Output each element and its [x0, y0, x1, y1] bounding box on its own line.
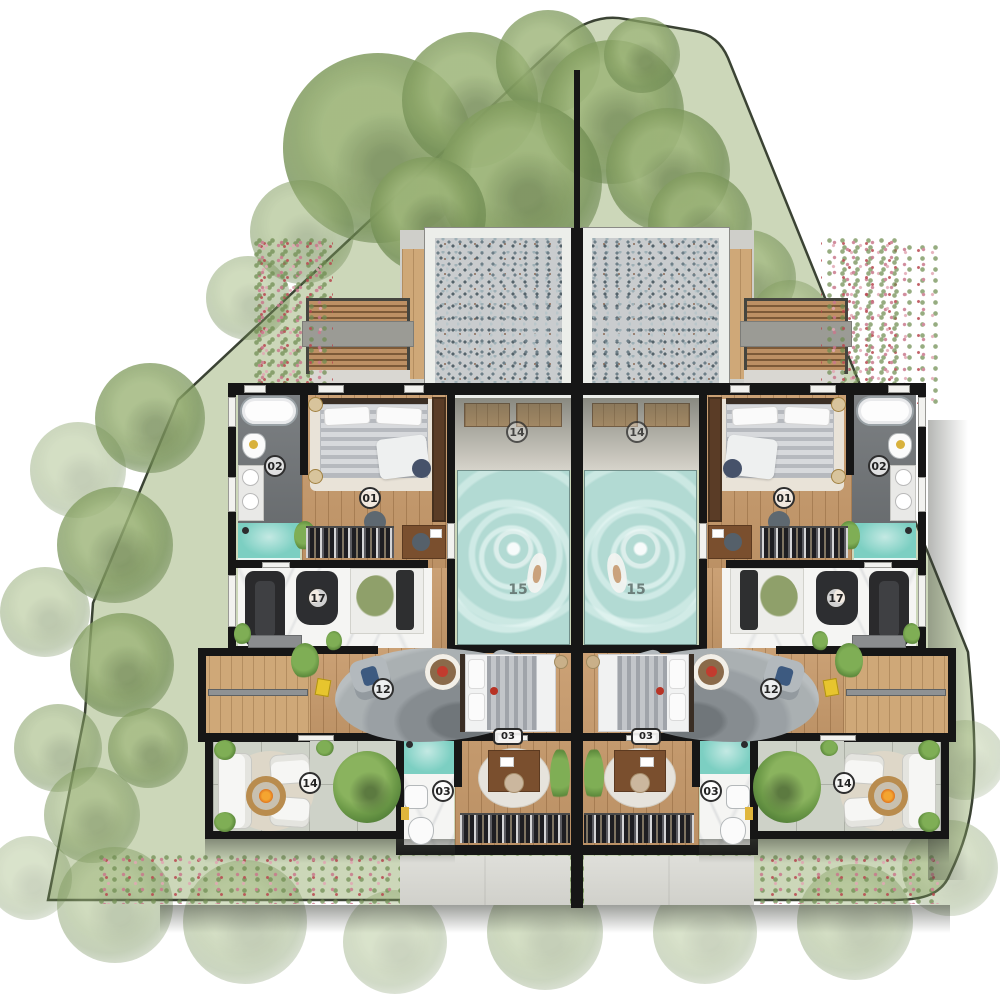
wall [454, 733, 462, 787]
bed-cushion-red [490, 687, 498, 695]
floor-plan-canvas: 02 01 17 12 14 03 14 15 03 [0, 0, 1000, 1000]
weight-machine [396, 570, 414, 630]
terrace-tree [753, 751, 821, 823]
flower-bed [821, 235, 901, 400]
terrace-tree [333, 751, 401, 823]
window [244, 385, 266, 393]
pouf [554, 655, 568, 669]
desk-chair [723, 459, 742, 478]
potted-plant [234, 623, 251, 645]
room-label-master-bedroom: 01 [359, 487, 381, 509]
pillow [468, 659, 485, 689]
gravel-courtyard [582, 228, 729, 405]
desk-papers [430, 529, 442, 538]
window [228, 397, 236, 427]
nightstand [831, 397, 846, 412]
villa-unit-right: 02 01 17 12 14 03 14 15 03 [577, 227, 956, 907]
toilet [720, 817, 746, 845]
wall [582, 383, 926, 395]
wall [948, 648, 956, 742]
bathtub [240, 396, 298, 426]
window [888, 385, 910, 393]
window [228, 477, 236, 512]
desk-chair [630, 773, 650, 793]
towel [745, 807, 753, 820]
pillow [324, 406, 371, 426]
wall [205, 733, 213, 839]
room-label-guest-bedroom: 03 [631, 728, 661, 745]
window [404, 385, 424, 393]
vanity-stool [412, 533, 430, 551]
closet-rail [306, 526, 394, 558]
window [318, 385, 344, 393]
closet-rail [584, 813, 694, 843]
terrace-plant [918, 740, 940, 760]
toilet-seat [249, 440, 258, 449]
room-label-pool-deck: 14 [506, 421, 528, 443]
towel [401, 807, 409, 820]
potted-plant [326, 631, 342, 651]
vanity-stool [724, 533, 742, 551]
closet-rail [460, 813, 570, 843]
sink [404, 785, 428, 809]
shower-head [406, 741, 413, 748]
window [918, 477, 926, 512]
gravel-courtyard [425, 228, 572, 405]
door-gap [262, 562, 290, 568]
room-label-gym: 17 [825, 587, 847, 609]
nightstand [831, 469, 846, 484]
terrace-plant [820, 740, 838, 756]
terrace-plant [214, 812, 236, 832]
pillow [732, 406, 779, 426]
gym-bench [852, 635, 906, 648]
door-gap [447, 523, 455, 559]
magazine-rack [315, 678, 332, 697]
swimming-pool [457, 470, 570, 645]
room-label-guest-bathroom: 03 [700, 780, 722, 802]
mat-leaf-print [356, 575, 398, 621]
room-label-master-bathroom: 02 [264, 455, 286, 477]
room-label-pool: 15 [625, 579, 647, 601]
mat-leaf-print [756, 575, 798, 621]
pouf [586, 655, 600, 669]
building-shadow-bottom [160, 905, 950, 933]
window [228, 575, 236, 627]
wall [941, 733, 949, 839]
flower-bed [253, 235, 333, 400]
wall [754, 831, 949, 839]
door-gap [864, 562, 892, 568]
laptop [500, 757, 514, 767]
potted-plant [835, 643, 863, 679]
shower-head [905, 527, 912, 534]
window [730, 385, 750, 393]
toilet-seat [896, 440, 905, 449]
terrace-plant [316, 740, 334, 756]
wall [205, 831, 400, 839]
potted-plant [812, 631, 828, 651]
wall [300, 395, 308, 475]
wall [198, 648, 206, 742]
party-wall [574, 70, 580, 230]
magazine-rack [823, 678, 840, 697]
tree [604, 17, 680, 93]
pillow [376, 406, 423, 426]
bathtub [856, 396, 914, 426]
swimming-pool [584, 470, 697, 645]
desk-chair [412, 459, 431, 478]
desk-chair [504, 773, 524, 793]
laptop [640, 757, 654, 767]
desk-papers [712, 529, 724, 538]
shower-head [741, 741, 748, 748]
nightstand [308, 469, 323, 484]
wardrobe [708, 397, 722, 522]
wardrobe [432, 397, 446, 522]
treadmill-belt [879, 581, 899, 637]
pillow [468, 693, 485, 721]
room-label-gym: 17 [307, 587, 329, 609]
fire-flame [881, 789, 895, 803]
room-label-terrace: 14 [833, 772, 855, 794]
room-label-living: 12 [372, 678, 394, 700]
potted-plant [550, 748, 570, 804]
room-label-pool-deck: 14 [626, 421, 648, 443]
treadmill-belt [255, 581, 275, 637]
headboard [689, 654, 694, 732]
nightstand [308, 397, 323, 412]
potted-plant [291, 643, 319, 679]
room-label-guest-bathroom: 03 [432, 780, 454, 802]
sink [242, 493, 259, 510]
sink [895, 469, 912, 486]
window [810, 385, 836, 393]
stairs-rail [846, 689, 946, 696]
door-gap [699, 523, 707, 559]
window [918, 575, 926, 627]
wall [228, 383, 572, 395]
sink [726, 785, 750, 809]
gym-bench [248, 635, 302, 648]
party-wall [571, 228, 583, 908]
potted-plant [584, 748, 604, 804]
terrace-plant [214, 740, 236, 760]
shower-head [242, 527, 249, 534]
weight-machine [740, 570, 758, 630]
table-decor [706, 666, 717, 677]
table-decor [437, 666, 448, 677]
room-label-living: 12 [760, 678, 782, 700]
closet-rail [760, 526, 848, 558]
terrace-plant [918, 812, 940, 832]
room-label-pool: 15 [507, 579, 529, 601]
bed-cushion-red [656, 687, 664, 695]
sink [242, 469, 259, 486]
window [918, 397, 926, 427]
room-label-guest-bedroom: 03 [493, 728, 523, 745]
tree [70, 613, 174, 717]
driveway-pad [400, 856, 570, 905]
room-label-terrace: 14 [299, 772, 321, 794]
sink [895, 493, 912, 510]
wall [692, 733, 700, 787]
room-label-master-bedroom: 01 [773, 487, 795, 509]
fire-flame [259, 789, 273, 803]
room-label-master-bathroom: 02 [868, 455, 890, 477]
wall [846, 395, 854, 475]
pillow [784, 406, 831, 426]
stairs-rail [208, 689, 308, 696]
toilet [408, 817, 434, 845]
villa-unit-left: 02 01 17 12 14 03 14 15 03 [198, 227, 577, 907]
potted-plant [903, 623, 920, 645]
pillow [669, 659, 686, 689]
driveway-pad [584, 856, 754, 905]
pillow [669, 693, 686, 721]
